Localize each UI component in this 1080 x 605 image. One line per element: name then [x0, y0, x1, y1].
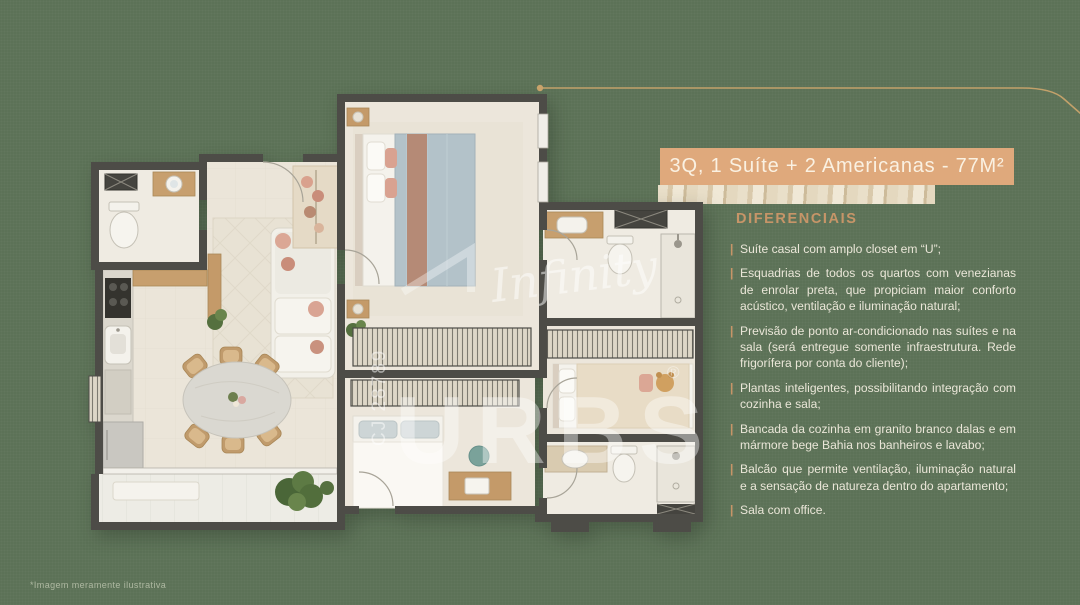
details-panel: DIFERENCIAIS |Suíte casal com amplo clos…: [730, 211, 1016, 527]
bullet-marker: |: [730, 461, 733, 477]
duct-box: [105, 174, 137, 190]
fridge-icon: [103, 422, 143, 468]
bullet-marker: |: [730, 323, 733, 339]
list-item: |Sala com office.: [730, 502, 1016, 518]
kitchen-sink-icon: [105, 326, 131, 364]
cooktop-icon: [105, 278, 131, 318]
dining-table-icon: [183, 362, 291, 438]
bullet-marker: |: [730, 421, 733, 437]
watermark-registered: ®: [667, 363, 680, 382]
list-item: |Plantas inteligentes, possibilitando in…: [730, 380, 1016, 413]
sink-icon: [557, 217, 587, 233]
list-item: |Previsão de ponto ar-condicionado nas s…: [730, 323, 1016, 372]
watermark-brand: URBS: [395, 377, 710, 484]
bullet-marker: |: [730, 265, 733, 281]
toilet-icon: [109, 202, 139, 248]
console-table: [208, 254, 221, 318]
floor-plan: Infinity URBS ® CJ 28789: [55, 78, 710, 548]
bullet-marker: |: [730, 380, 733, 396]
list-item: |Bancada da cozinha em granito branco da…: [730, 421, 1016, 454]
shower-icon: [661, 234, 695, 318]
list-item: |Suíte casal com amplo closet em “U”;: [730, 241, 1016, 257]
plan-title-banner: 3Q, 1 Suíte + 2 Americanas - 77M²: [660, 148, 1014, 185]
sofa-icon: [271, 228, 335, 378]
plan-title: 3Q, 1 Suíte + 2 Americanas - 77M²: [670, 155, 1005, 178]
bench-icon: [113, 482, 199, 500]
mat-box: [657, 504, 695, 514]
details-list: |Suíte casal com amplo closet em “U”; |E…: [730, 241, 1016, 519]
bullet-marker: |: [730, 502, 733, 518]
details-heading: DIFERENCIAIS: [736, 211, 1016, 227]
wardrobe-hangers: [547, 330, 693, 358]
dining-area: [181, 347, 291, 453]
shaft-box: [615, 210, 667, 228]
bullet-marker: |: [730, 241, 733, 257]
poster-background: 3Q, 1 Suíte + 2 Americanas - 77M²: [0, 0, 1080, 605]
watermark-registration: CJ 28789: [369, 349, 390, 446]
disclaimer-note: *Imagem meramente ilustrativa: [30, 580, 166, 590]
entry-wardrobe: [293, 166, 339, 248]
list-item: |Esquadrias de todos os quartos com vene…: [730, 265, 1016, 314]
list-item: |Balcão que permite ventilação, iluminaç…: [730, 461, 1016, 494]
